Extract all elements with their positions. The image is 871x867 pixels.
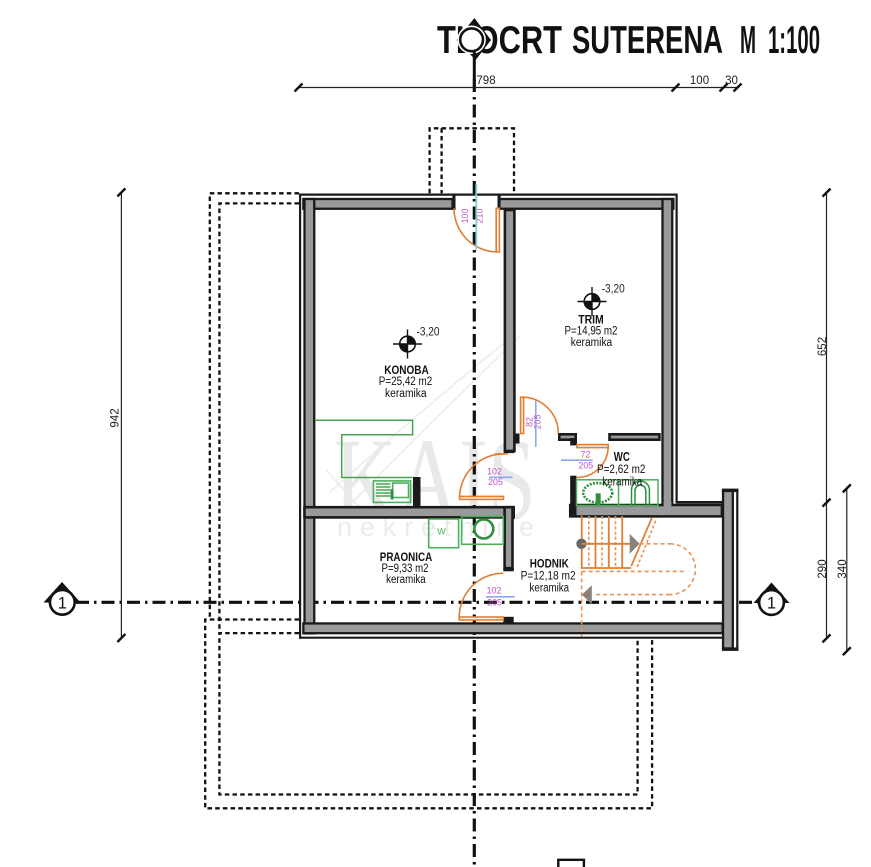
svg-text:102: 102 [487,586,502,596]
svg-text:SUTERENA: SUTERENA [572,19,723,62]
svg-text:TRIM: TRIM [578,313,604,327]
svg-text:P=25,42 m2: P=25,42 m2 [379,376,433,388]
svg-text:205: 205 [578,460,593,470]
svg-text:P=14,95 m2: P=14,95 m2 [565,326,618,338]
svg-text:TLOCRT: TLOCRT [437,19,562,62]
svg-text:652: 652 [817,337,829,356]
svg-text:-3,20: -3,20 [417,327,440,339]
svg-text:798: 798 [476,75,495,87]
svg-text:205: 205 [487,598,502,608]
svg-text:WC: WC [614,450,630,464]
svg-text:KONOBA: KONOBA [384,363,429,377]
svg-text:205: 205 [488,477,503,487]
svg-text:HODNIK: HODNIK [530,556,569,570]
svg-text:W: W [437,527,446,537]
svg-text:1:100: 1:100 [768,19,820,62]
svg-text:keramika: keramika [571,337,613,349]
svg-text:290: 290 [817,559,829,578]
svg-text:942: 942 [110,408,122,427]
svg-text:102: 102 [487,466,502,476]
svg-text:100: 100 [690,75,709,87]
svg-text:1: 1 [767,595,776,613]
svg-text:M: M [740,19,756,62]
svg-text:keramika: keramika [602,476,643,488]
svg-text:100: 100 [460,209,470,224]
svg-text:PRAONICA: PRAONICA [380,550,433,564]
svg-text:30: 30 [725,75,738,87]
svg-text:P=2,62 m2: P=2,62 m2 [597,464,646,476]
svg-text:340: 340 [837,559,849,578]
svg-text:keramika: keramika [386,574,426,586]
svg-text:keramika: keramika [385,388,427,400]
svg-text:72: 72 [581,450,591,460]
svg-text:P=12,18 m2: P=12,18 m2 [521,571,576,583]
svg-text:-3,20: -3,20 [602,283,625,295]
svg-text:1: 1 [58,594,67,612]
svg-text:205: 205 [533,415,543,430]
svg-text:keramika: keramika [530,582,570,594]
